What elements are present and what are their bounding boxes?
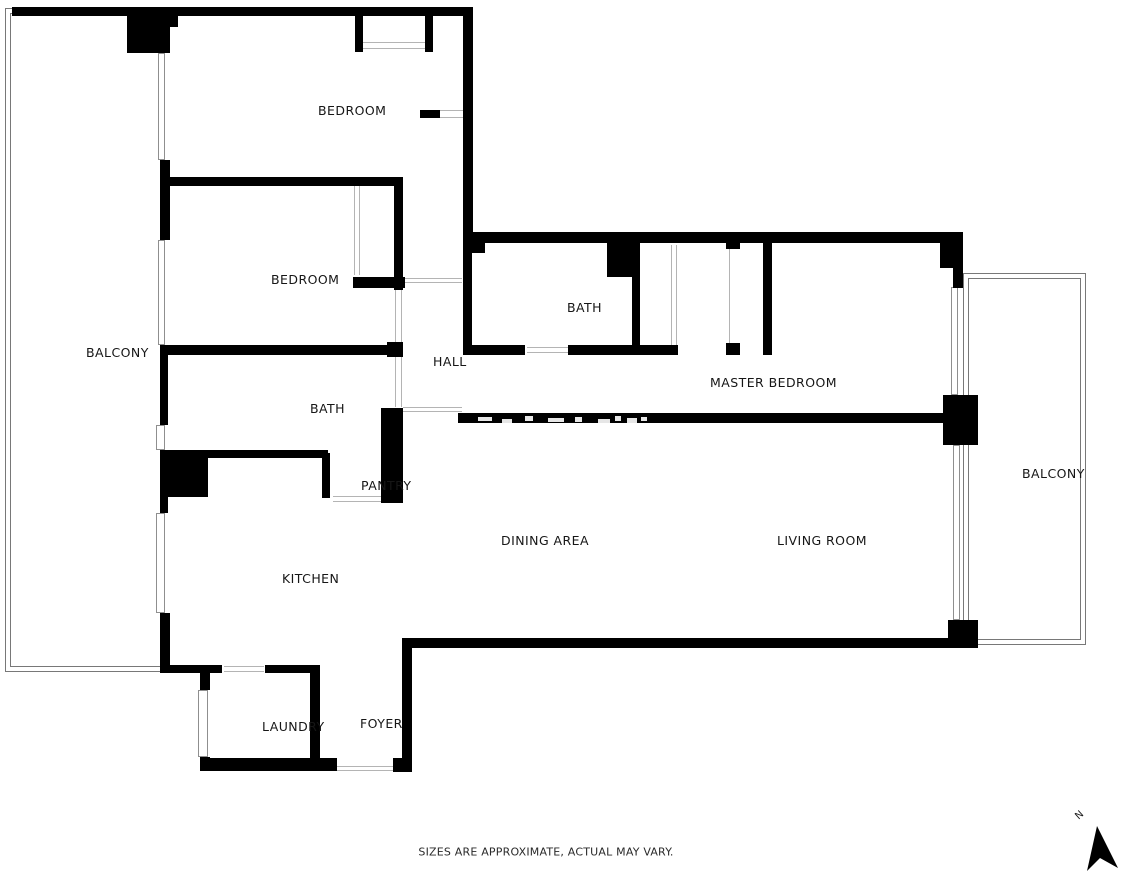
- wall-segment: [170, 15, 178, 27]
- door-line: [395, 357, 396, 407]
- wall-segment: [160, 497, 168, 513]
- disclaimer-text: SIZES ARE APPROXIMATE, ACTUAL MAY VARY.: [418, 846, 673, 859]
- wall-segment: [160, 450, 208, 497]
- wall-segment: [425, 16, 433, 52]
- wall-segment: [208, 450, 328, 458]
- window-symbol: [198, 690, 208, 757]
- wall-segment: [632, 345, 678, 355]
- door-line: [527, 352, 568, 353]
- wall-segment: [394, 177, 403, 290]
- wall-segment: [402, 638, 412, 772]
- wall-segment: [322, 453, 330, 498]
- door-line: [403, 411, 462, 412]
- wall-artifact: [615, 416, 621, 421]
- door-line: [337, 766, 393, 767]
- door-line: [224, 671, 264, 672]
- wall-segment: [387, 342, 403, 357]
- door-line: [440, 110, 463, 111]
- wall-segment: [200, 673, 210, 690]
- door-line: [224, 666, 264, 667]
- balcony-outline: [968, 278, 1081, 640]
- wall-segment: [607, 240, 640, 277]
- door-line: [729, 249, 730, 343]
- wall-artifact: [627, 418, 637, 423]
- wall-segment: [200, 758, 337, 771]
- wall-artifact: [502, 419, 512, 423]
- wall-segment: [763, 240, 772, 355]
- balcony-outline: [10, 13, 161, 667]
- door-line: [337, 770, 393, 771]
- window-symbol: [158, 240, 165, 345]
- wall-segment: [355, 16, 363, 52]
- wall-segment: [160, 613, 170, 672]
- door-line: [440, 117, 463, 118]
- wall-segment: [160, 160, 170, 240]
- wall-segment: [420, 110, 440, 118]
- wall-segment: [393, 758, 412, 772]
- wall-segment: [726, 343, 740, 355]
- door-line: [363, 48, 425, 49]
- wall-segment: [948, 620, 978, 648]
- wall-segment: [160, 345, 390, 355]
- wall-segment: [353, 277, 405, 288]
- north-arrow-icon: [1084, 826, 1122, 874]
- wall-segment: [943, 395, 978, 445]
- wall-segment: [463, 232, 963, 243]
- floorplan: SIZES ARE APPROXIMATE, ACTUAL MAY VARY. …: [0, 0, 1122, 874]
- wall-segment: [12, 7, 473, 16]
- wall-segment: [953, 268, 963, 288]
- wall-artifact: [575, 417, 582, 422]
- wall-segment: [160, 345, 168, 425]
- door-line: [403, 407, 462, 408]
- door-line: [403, 282, 462, 283]
- window-symbol: [158, 53, 165, 160]
- wall-segment: [940, 233, 963, 268]
- wall-artifact: [478, 417, 492, 421]
- window-symbol: [156, 513, 165, 613]
- door-line: [403, 278, 462, 279]
- wall-segment: [167, 177, 403, 186]
- wall-segment: [310, 665, 320, 770]
- wall-segment: [463, 345, 525, 355]
- wall-segment: [468, 232, 485, 253]
- door-line: [527, 347, 568, 348]
- wall-segment: [127, 15, 170, 53]
- wall-segment: [210, 665, 222, 673]
- wall-segment: [463, 7, 473, 233]
- wall-segment: [402, 638, 950, 648]
- door-line: [363, 42, 425, 43]
- wall-segment: [726, 240, 740, 249]
- door-line: [676, 245, 677, 345]
- window-symbol: [951, 287, 958, 395]
- door-line: [671, 245, 672, 345]
- door-line: [401, 357, 402, 407]
- door-line: [395, 290, 396, 342]
- window-symbol: [953, 445, 960, 620]
- north-indicator: N: [1068, 806, 1122, 874]
- north-label: N: [1073, 809, 1086, 822]
- door-line: [359, 186, 360, 275]
- wall-artifact: [641, 417, 647, 421]
- wall-segment: [568, 345, 632, 355]
- door-line: [401, 290, 402, 342]
- wall-artifact: [598, 419, 610, 423]
- wall-artifact: [548, 418, 564, 422]
- door-line: [354, 186, 355, 275]
- wall-segment: [632, 277, 640, 345]
- window-symbol: [156, 425, 165, 450]
- wall-artifact: [525, 416, 533, 421]
